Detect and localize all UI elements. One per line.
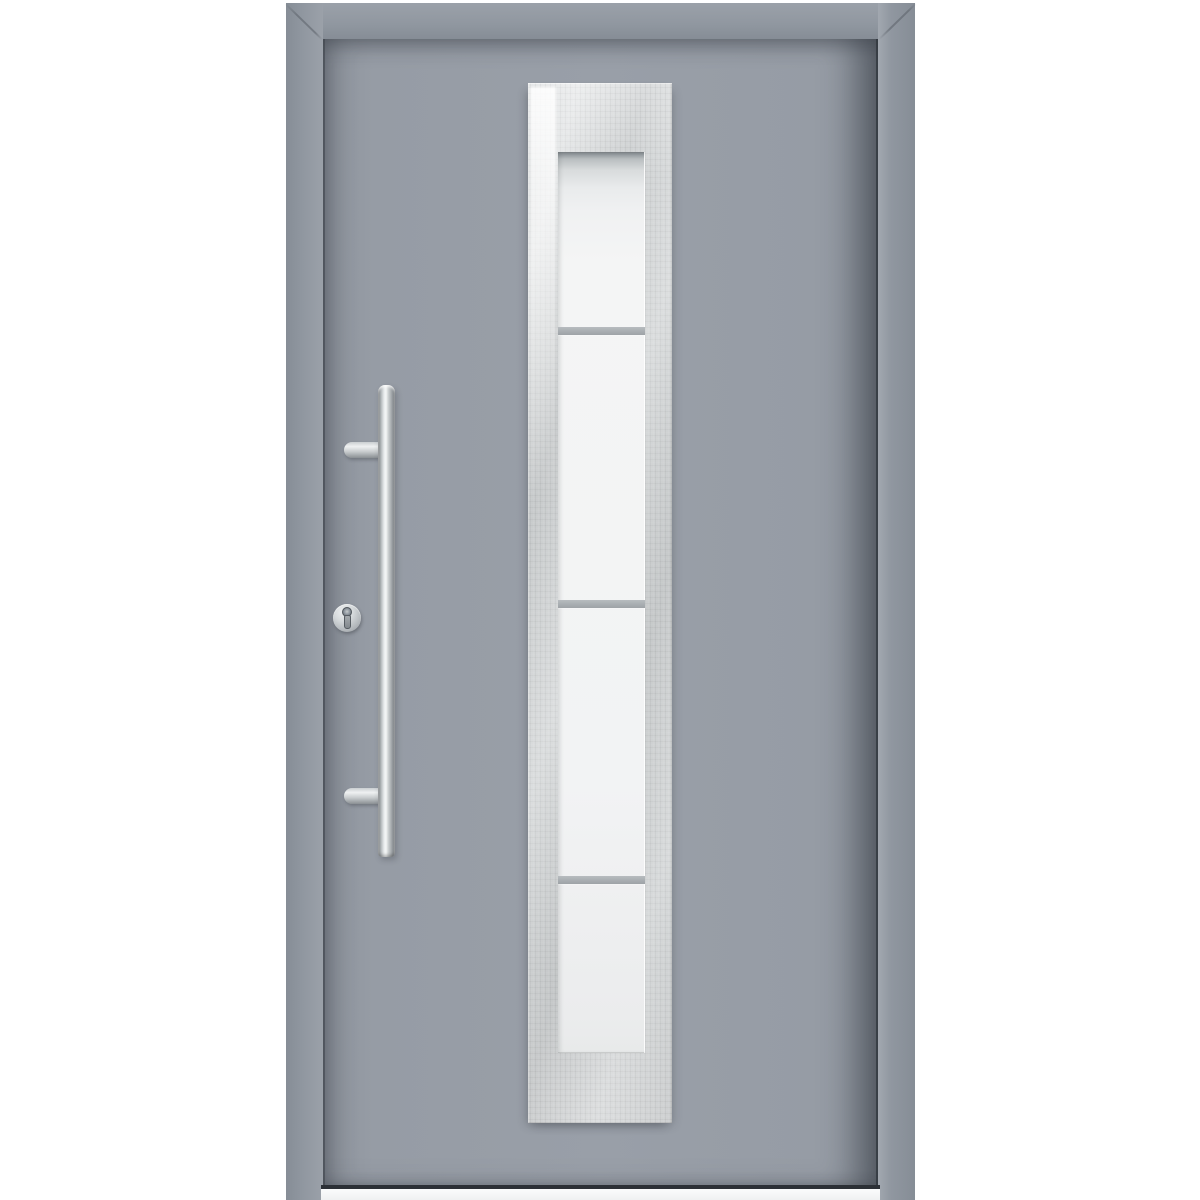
door-frame-right [878, 3, 915, 1200]
door-handle-bar [378, 385, 395, 857]
glazing-bar [558, 327, 645, 335]
glazing-bar [558, 600, 645, 608]
keyhole-slot [344, 615, 351, 629]
door-frame-top [286, 3, 915, 39]
threshold [321, 1189, 880, 1200]
glazing-bar [558, 876, 645, 884]
door-product-photo [0, 0, 1200, 1200]
door-frame-left [286, 3, 323, 1200]
